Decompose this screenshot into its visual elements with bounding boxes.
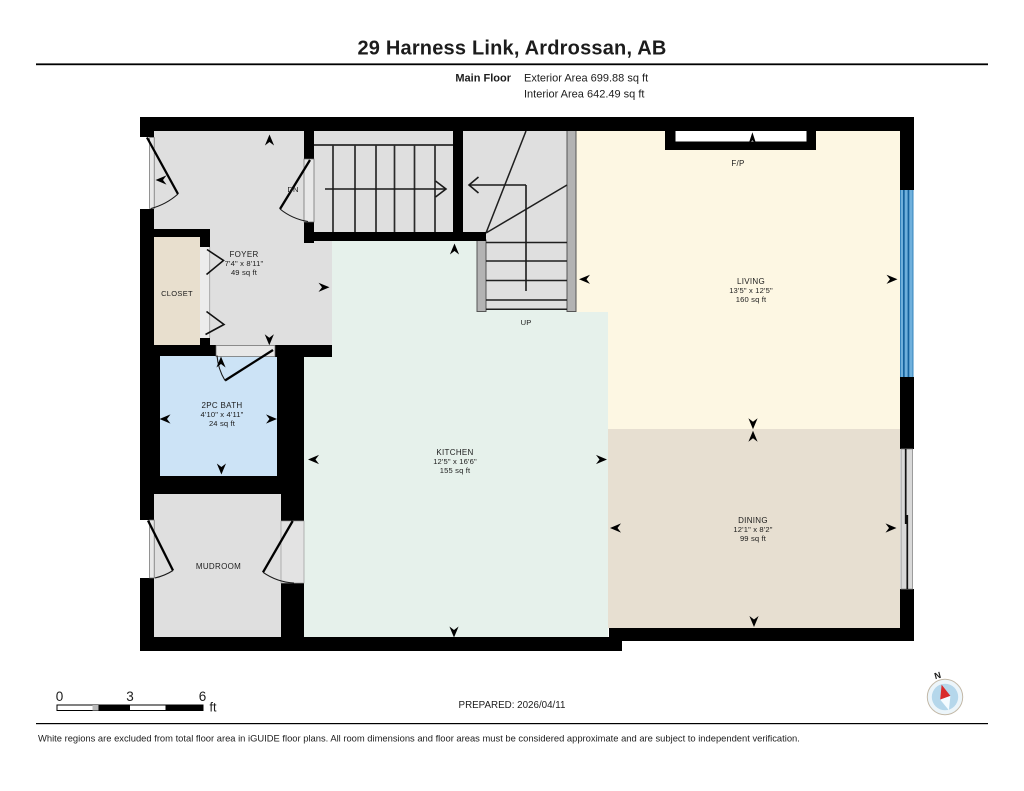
svg-text:Main Floor: Main Floor — [455, 73, 511, 85]
svg-text:KITCHEN: KITCHEN — [436, 448, 473, 457]
svg-text:7'4" x 8'11": 7'4" x 8'11" — [225, 259, 264, 268]
svg-text:F/P: F/P — [731, 159, 744, 168]
svg-text:PREPARED: 2026/04/11: PREPARED: 2026/04/11 — [459, 700, 566, 711]
svg-text:3: 3 — [126, 689, 134, 704]
svg-text:DN: DN — [287, 185, 298, 194]
svg-text:12'1" x 8'2": 12'1" x 8'2" — [733, 525, 772, 534]
svg-text:4'10" x 4'11": 4'10" x 4'11" — [200, 410, 243, 419]
svg-text:0: 0 — [56, 689, 64, 704]
svg-text:UP: UP — [521, 318, 532, 327]
svg-text:13'5" x 12'5": 13'5" x 12'5" — [729, 286, 773, 295]
svg-text:2PC BATH: 2PC BATH — [202, 401, 243, 410]
svg-text:24 sq ft: 24 sq ft — [209, 419, 236, 428]
svg-text:ft: ft — [210, 701, 217, 715]
svg-text:CLOSET: CLOSET — [161, 289, 193, 298]
svg-text:Interior Area 642.49 sq ft: Interior Area 642.49 sq ft — [524, 89, 644, 101]
svg-text:155 sq ft: 155 sq ft — [440, 466, 471, 475]
svg-text:FOYER: FOYER — [229, 250, 258, 259]
svg-text:N: N — [933, 670, 942, 681]
svg-text:Exterior Area 699.88 sq ft: Exterior Area 699.88 sq ft — [524, 73, 648, 85]
svg-text:49 sq ft: 49 sq ft — [231, 268, 258, 277]
svg-text:LIVING: LIVING — [737, 277, 765, 286]
svg-text:29 Harness Link, Ardrossan, AB: 29 Harness Link, Ardrossan, AB — [357, 38, 666, 60]
svg-text:160 sq ft: 160 sq ft — [736, 295, 767, 304]
svg-text:White regions are excluded fro: White regions are excluded from total fl… — [38, 733, 800, 744]
svg-text:99 sq ft: 99 sq ft — [740, 534, 767, 543]
svg-text:6: 6 — [199, 689, 207, 704]
svg-text:DINING: DINING — [738, 516, 768, 525]
svg-text:MUDROOM: MUDROOM — [196, 562, 241, 571]
svg-text:12'5" x 16'6": 12'5" x 16'6" — [433, 457, 477, 466]
